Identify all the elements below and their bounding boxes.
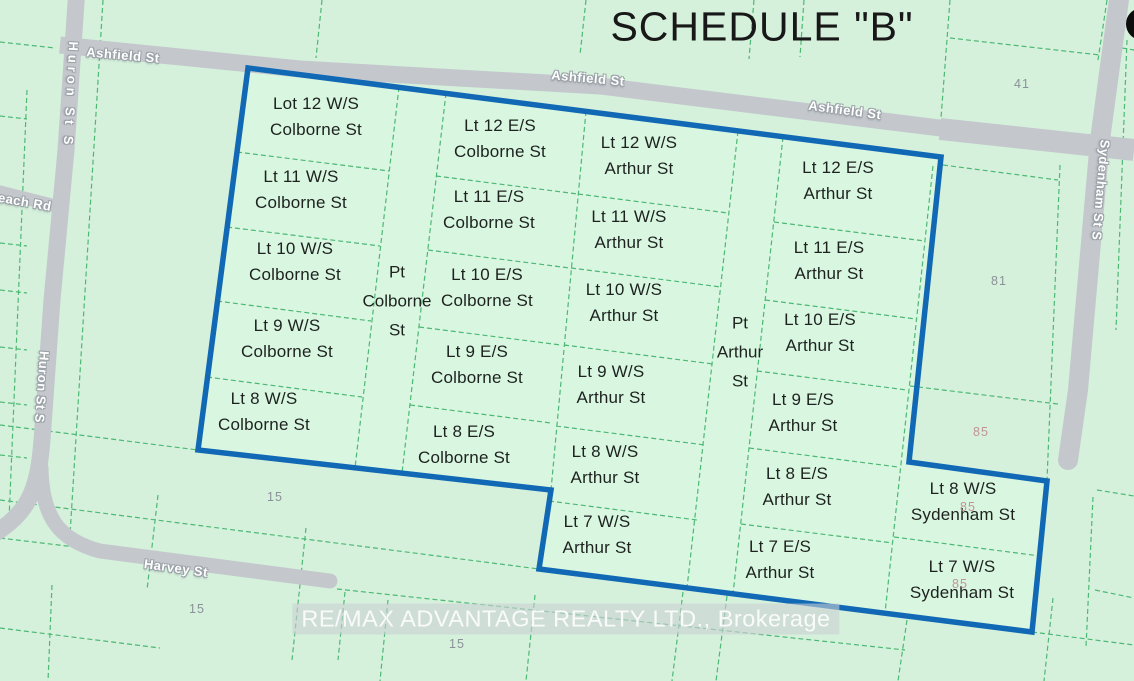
lot-label: Lt 9 E/S Colborne St <box>431 339 523 391</box>
parcel-number: 15 <box>267 490 283 504</box>
lot-label: Lt 7 W/S Arthur St <box>563 509 632 561</box>
parcel-number: 15 <box>189 602 205 616</box>
lot-label: Lt 11 W/S Colborne St <box>255 164 347 216</box>
brokerage-watermark: RE/MAX ADVANTAGE REALTY LTD., Brokerage <box>292 604 839 635</box>
lot-label: Lt 10 W/S Arthur St <box>586 277 662 329</box>
lot-label: Lt 9 W/S Colborne St <box>241 313 333 365</box>
lot-label: Lt 11 W/S Arthur St <box>591 204 666 256</box>
lot-label: Lt 8 E/S Colborne St <box>418 419 510 471</box>
page-title: SCHEDULE "B" <box>610 4 913 51</box>
street-part-label: Pt Colborne St <box>363 258 432 345</box>
parcel-number: 15 <box>449 637 465 651</box>
parcel-number: 85 <box>952 577 968 591</box>
parcel-number: 85 <box>960 500 976 514</box>
lot-label: Lt 8 E/S Arthur St <box>763 461 832 513</box>
clipped-corner-glyph <box>1130 12 1134 36</box>
lot-label: Lt 12 E/S Arthur St <box>802 155 874 207</box>
lot-label: Lt 9 W/S Arthur St <box>577 359 646 411</box>
lot-label: Lt 11 E/S Arthur St <box>794 235 864 287</box>
parcel-number: 81 <box>991 274 1007 288</box>
parcel-number: 41 <box>1014 77 1030 91</box>
lot-label: Lt 10 E/S Colborne St <box>441 262 533 314</box>
lot-label: Lt 10 W/S Colborne St <box>249 236 341 288</box>
lot-label: Lt 8 W/S Arthur St <box>571 439 640 491</box>
parcel-number: 85 <box>973 425 989 439</box>
plat-map-canvas: SCHEDULE "B" Lot 12 W/S Colborne StLt 11… <box>0 0 1134 681</box>
lot-label: Lt 10 E/S Arthur St <box>784 307 856 359</box>
street-part-label: Pt Arthur St <box>717 309 763 396</box>
lot-label: Lt 7 E/S Arthur St <box>746 534 815 586</box>
lot-label: Lt 11 E/S Colborne St <box>443 184 535 236</box>
lot-label: Lt 12 E/S Colborne St <box>454 113 546 165</box>
lot-label: Lt 9 E/S Arthur St <box>769 387 838 439</box>
lot-label: Lt 8 W/S Colborne St <box>218 386 310 438</box>
lot-label: Lt 12 W/S Arthur St <box>601 130 677 182</box>
lot-label: Lot 12 W/S Colborne St <box>270 91 362 143</box>
